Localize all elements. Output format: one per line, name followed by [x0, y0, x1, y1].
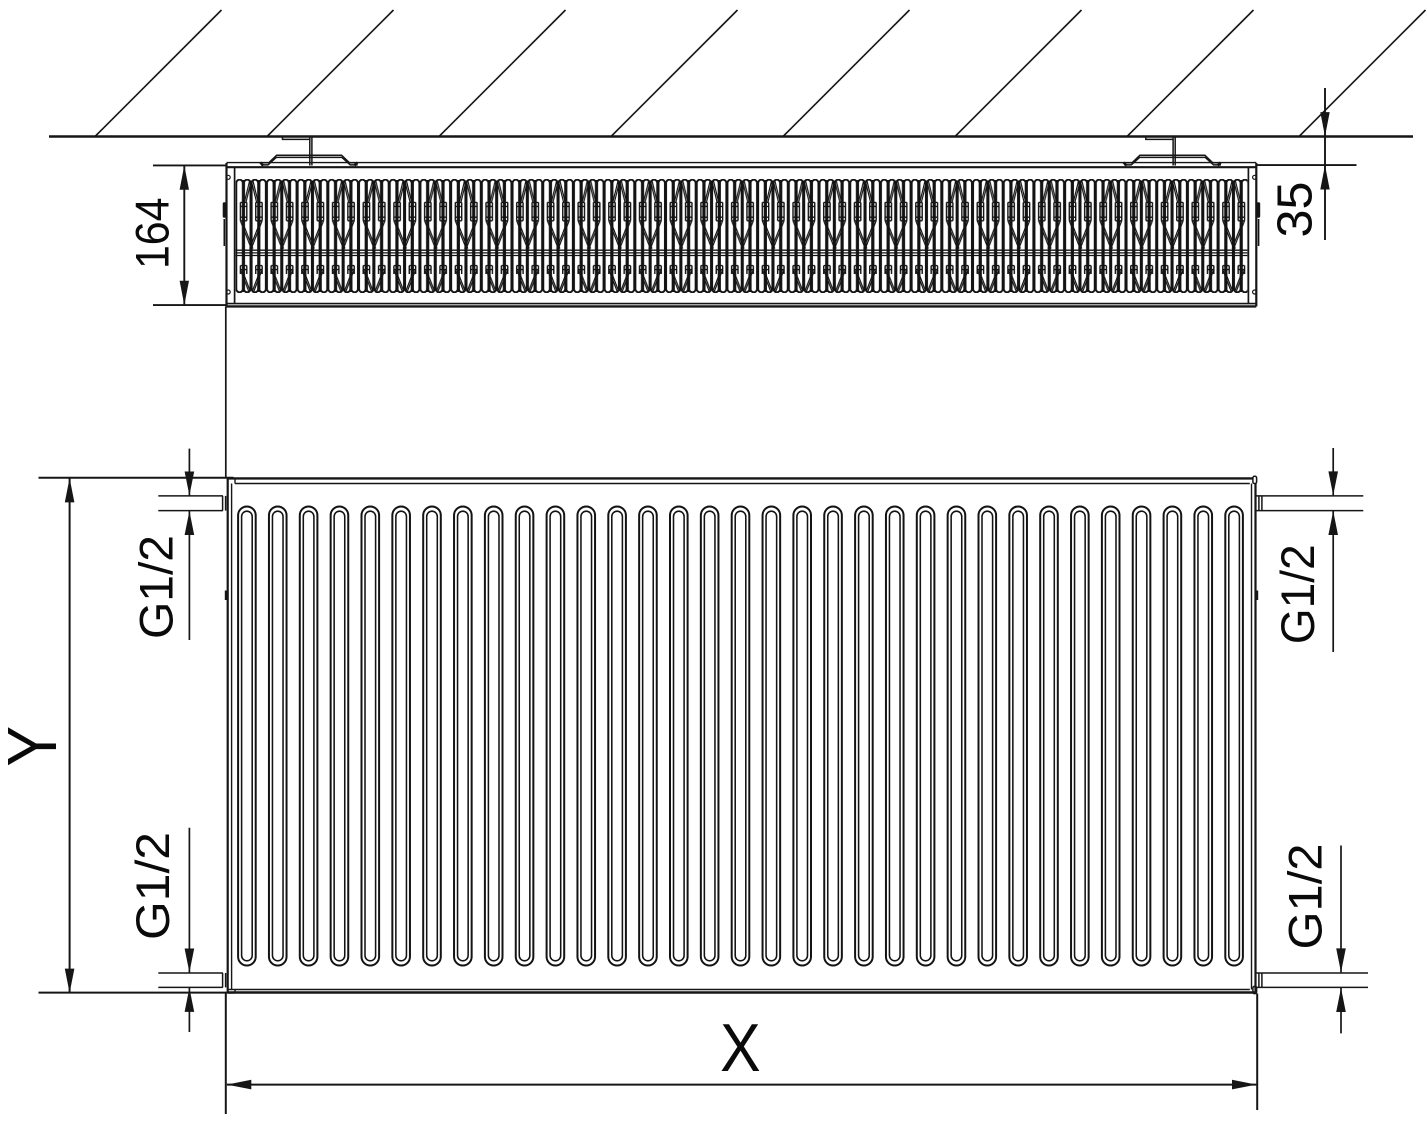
svg-text:X: X	[720, 1010, 761, 1086]
svg-text:35: 35	[1269, 182, 1323, 238]
svg-text:Y: Y	[0, 726, 71, 767]
svg-text:G1/2: G1/2	[129, 535, 182, 639]
svg-text:G1/2: G1/2	[126, 832, 179, 940]
svg-text:G1/2: G1/2	[1279, 844, 1332, 950]
svg-text:164: 164	[127, 198, 180, 269]
svg-text:G1/2: G1/2	[1271, 544, 1324, 644]
